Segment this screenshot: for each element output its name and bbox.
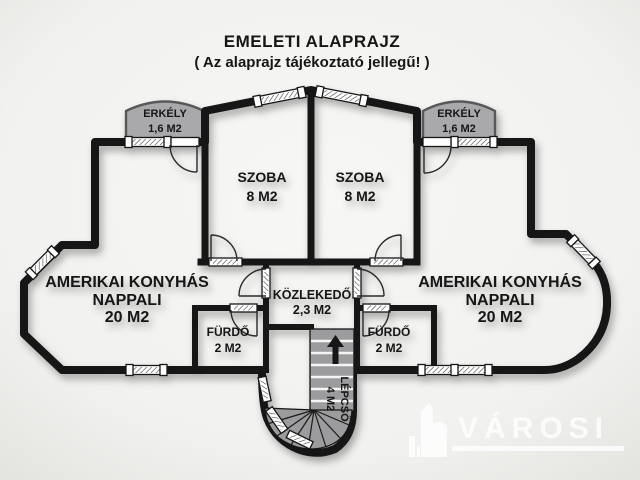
- door-threshold: [171, 138, 199, 147]
- label-bath-right-name: FÜRDŐ: [368, 324, 411, 339]
- label-corridor-name: KÖZLEKEDŐ: [273, 287, 352, 302]
- label-living-left-name1: AMERIKAI KONYHÁS: [45, 272, 209, 291]
- label-staircase-area: 4 M2: [324, 387, 336, 411]
- label-living-right-area: 20 M2: [478, 309, 523, 326]
- window: [451, 137, 497, 148]
- label-living-left-area: 20 M2: [105, 309, 150, 326]
- door-threshold: [230, 304, 257, 312]
- label-balcony-left-name: ERKÉLY: [143, 107, 187, 120]
- watermark-brand: VÁROSI: [458, 411, 609, 445]
- label-bedroom-left-name: SZOBA: [238, 169, 287, 185]
- label-staircase-name: LÉPCSŐ: [338, 376, 351, 422]
- floorplan-page: EMELETI ALAPRAJZ ( Az alaprajz tájékozta…: [0, 0, 640, 480]
- floorplan-canvas: EMELETI ALAPRAJZ ( Az alaprajz tájékozta…: [0, 0, 640, 480]
- label-bath-left-name: FÜRDŐ: [207, 324, 250, 339]
- label-bedroom-left-area: 8 M2: [246, 188, 277, 204]
- door-threshold: [423, 138, 451, 147]
- window: [126, 365, 167, 376]
- label-bath-right-area: 2 M2: [376, 341, 403, 355]
- label-living-right-name1: AMERIKAI KONYHÁS: [418, 272, 582, 291]
- label-living-right-name2: NAPPALI: [465, 292, 534, 309]
- plan-subtitle: ( Az alaprajz tájékoztató jellegű! ): [194, 54, 429, 71]
- label-corridor-area: 2,3 M2: [293, 303, 331, 317]
- label-bath-left-area: 2 M2: [215, 341, 242, 355]
- label-living-left-name2: NAPPALI: [92, 292, 161, 309]
- label-bedroom-right-name: SZOBA: [336, 169, 385, 185]
- label-balcony-right-area: 1,6 M2: [442, 123, 476, 135]
- window: [418, 365, 492, 376]
- label-bedroom-right-area: 8 M2: [344, 188, 375, 204]
- window: [125, 137, 171, 148]
- door-threshold: [262, 268, 270, 298]
- door-threshold: [363, 304, 390, 312]
- watermark-underline: [452, 446, 624, 451]
- plan-title: EMELETI ALAPRAJZ: [224, 32, 400, 51]
- label-balcony-left-area: 1,6 M2: [148, 123, 182, 135]
- door-threshold: [353, 268, 361, 298]
- label-balcony-right-name: ERKÉLY: [437, 107, 481, 120]
